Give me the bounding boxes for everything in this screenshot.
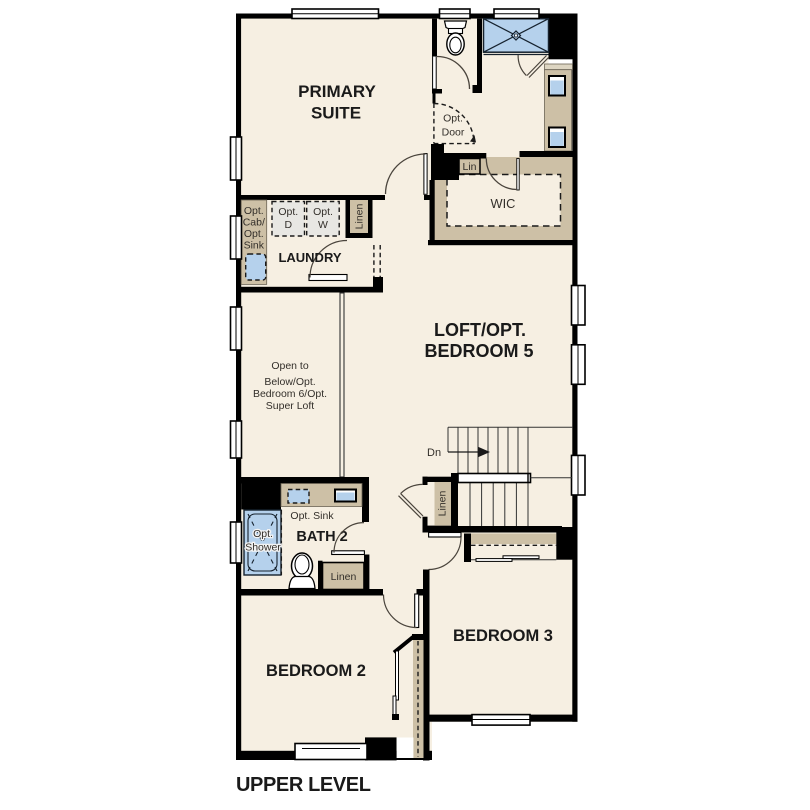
svg-text:LOFT/OPT.: LOFT/OPT. (434, 320, 526, 340)
svg-text:Opt.: Opt. (313, 206, 333, 218)
svg-text:D: D (285, 219, 293, 231)
svg-text:W: W (318, 219, 328, 231)
svg-text:Dn: Dn (427, 447, 441, 459)
svg-text:Linen: Linen (331, 571, 357, 583)
svg-text:BEDROOM 2: BEDROOM 2 (266, 662, 366, 680)
svg-text:Sink: Sink (244, 240, 265, 252)
svg-text:Cab/: Cab/ (243, 217, 265, 229)
svg-text:Opt.: Opt. (244, 205, 264, 217)
svg-text:LAUNDRY: LAUNDRY (278, 250, 341, 265)
svg-text:Opt.: Opt. (443, 113, 463, 125)
svg-text:BATH 2: BATH 2 (296, 529, 347, 545)
svg-text:BEDROOM 3: BEDROOM 3 (453, 627, 553, 645)
svg-text:Opt. Sink: Opt. Sink (290, 510, 334, 522)
svg-text:Bedroom 6/Opt.: Bedroom 6/Opt. (253, 388, 327, 400)
svg-text:BEDROOM 5: BEDROOM 5 (424, 341, 533, 361)
svg-text:Door: Door (442, 127, 465, 139)
svg-text:Lin: Lin (462, 161, 476, 173)
svg-text:Linen: Linen (437, 491, 449, 517)
svg-text:Shower: Shower (245, 542, 281, 554)
svg-text:Open to: Open to (271, 360, 309, 372)
svg-text:Opt.: Opt. (253, 528, 273, 540)
svg-text:Opt.: Opt. (244, 228, 264, 240)
svg-text:SUITE: SUITE (311, 104, 361, 123)
svg-text:WIC: WIC (491, 196, 516, 211)
svg-text:UPPER LEVEL: UPPER LEVEL (236, 774, 371, 796)
svg-text:Super Loft: Super Loft (266, 400, 315, 412)
svg-text:Opt.: Opt. (278, 206, 298, 218)
svg-text:Below/Opt.: Below/Opt. (264, 376, 315, 388)
svg-text:Linen: Linen (354, 204, 366, 230)
svg-text:PRIMARY: PRIMARY (298, 82, 376, 101)
